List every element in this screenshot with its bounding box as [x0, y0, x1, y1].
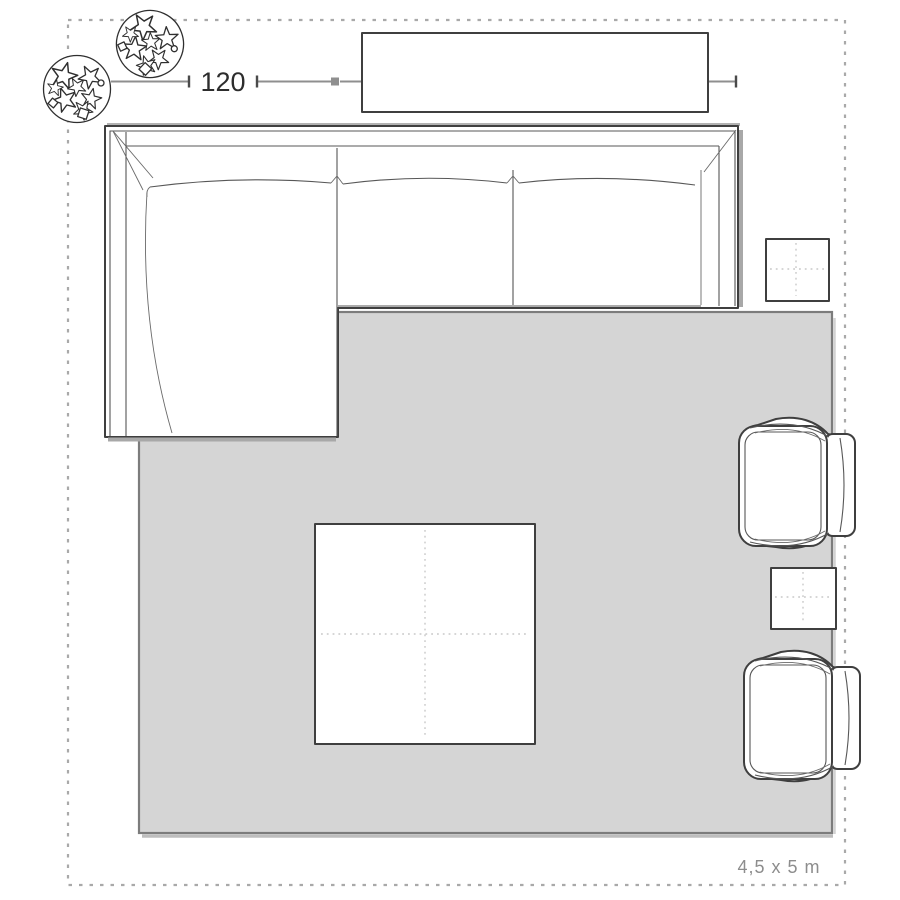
sideboard: [362, 33, 708, 112]
dimension-label-120: 120: [200, 67, 245, 97]
armchair-top: [739, 418, 855, 548]
plant-left: [44, 56, 111, 123]
coffee-table: [315, 524, 535, 744]
plant-top: [105, 0, 194, 89]
side-table-bottom: [771, 568, 836, 629]
side-table-top: [766, 239, 829, 301]
room-size-label: 4,5 x 5 m: [737, 857, 820, 877]
floor-plan-canvas: 120 233: [0, 0, 900, 900]
floor-plan-page: 120 233: [0, 0, 900, 900]
armchair-bottom: [744, 651, 860, 781]
dimension-split-marker: [331, 78, 339, 86]
